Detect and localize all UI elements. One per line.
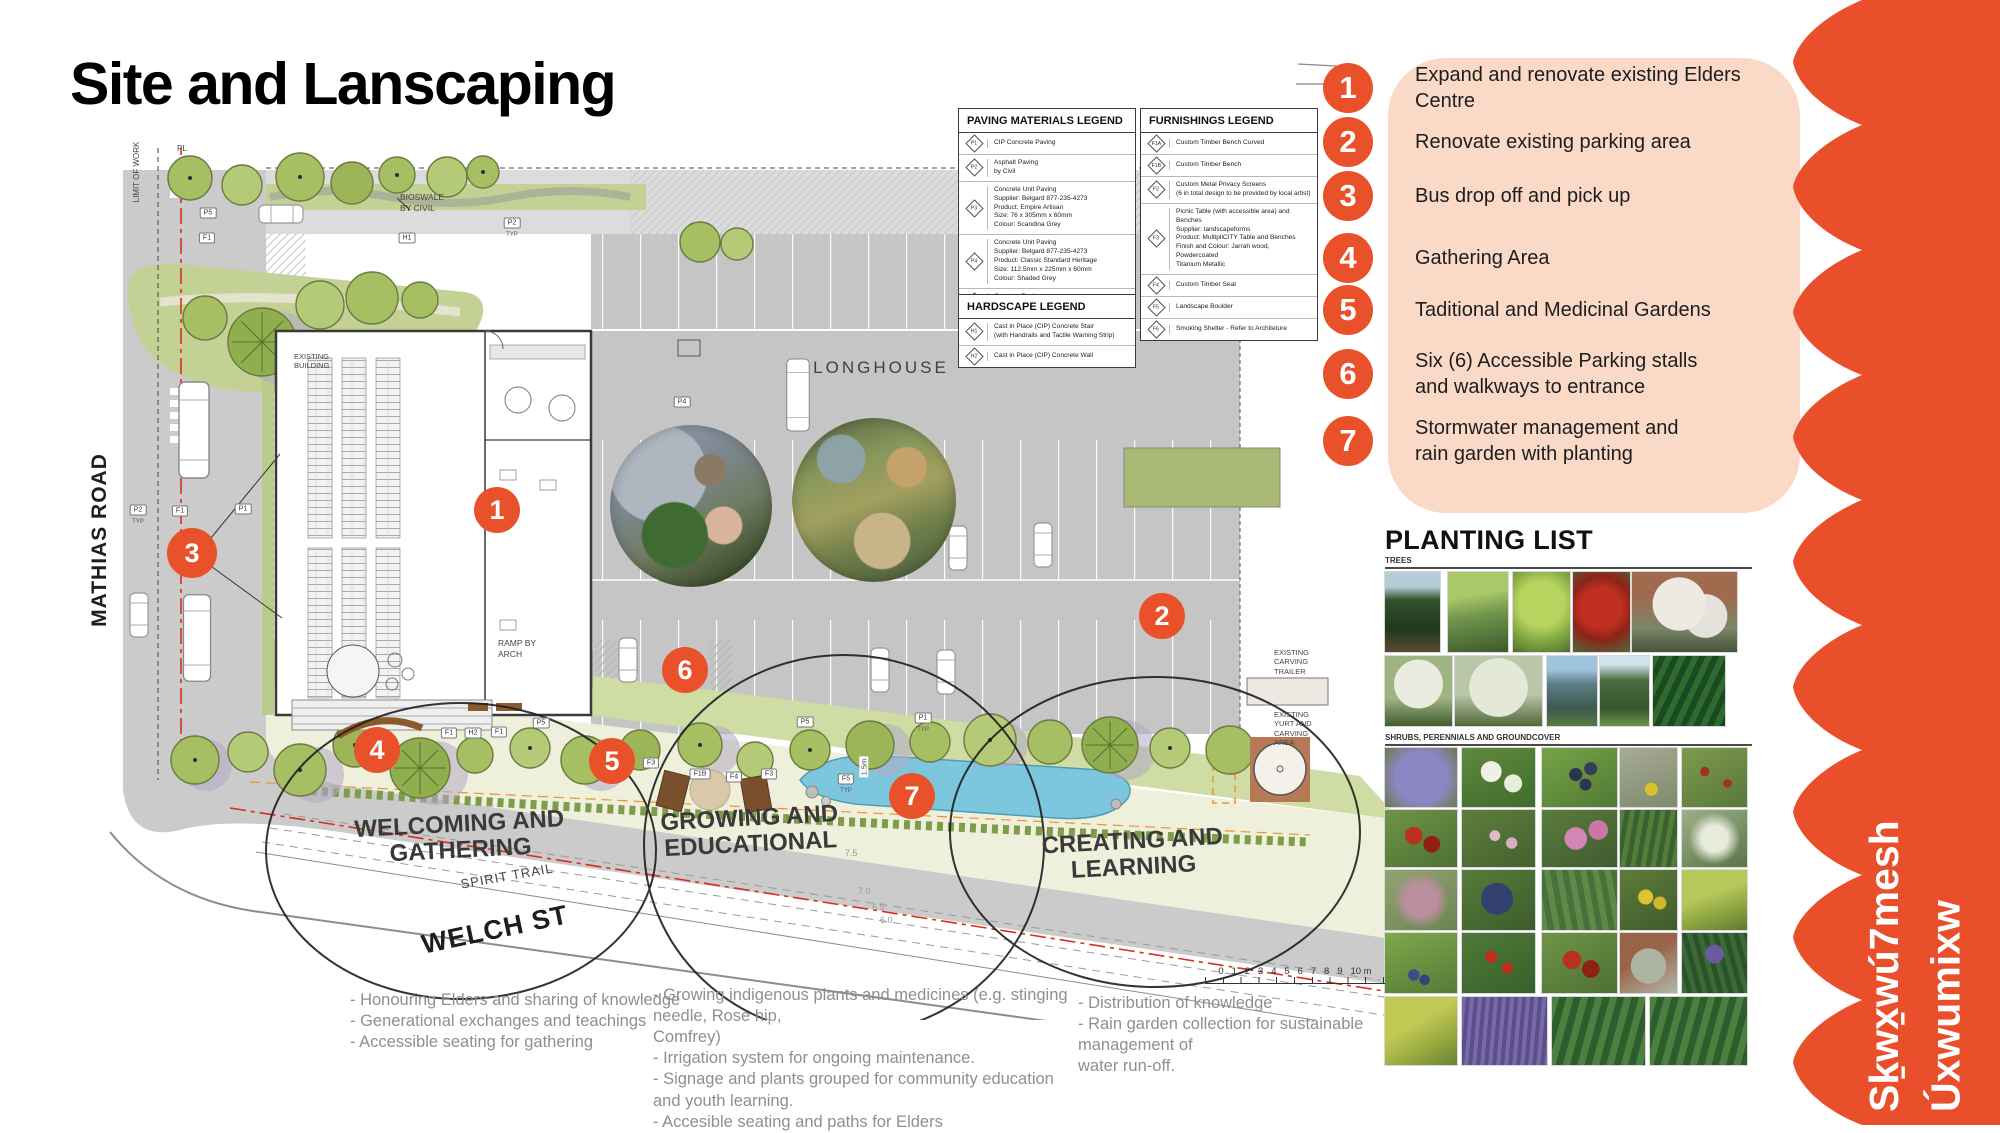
page-title: Site and Lanscaping xyxy=(70,50,615,118)
key-item-4: 4Gathering Area xyxy=(1323,233,1760,283)
contour-label: 7.0 xyxy=(858,886,871,896)
hardscape-legend: HARDSCAPE LEGEND H1Cast in Place (CIP) C… xyxy=(958,294,1136,368)
plant-photo xyxy=(1682,748,1747,807)
furnishing-code-icon: F2 xyxy=(1147,183,1165,196)
legend-title: FURNISHINGS LEGEND xyxy=(1141,109,1317,133)
key-text: Expand and renovate existing Elders Cent… xyxy=(1415,62,1760,115)
furnishing-code-icon: F1A xyxy=(1147,137,1165,150)
paving-code-icon: P4 xyxy=(965,255,983,268)
legend-desc: Custom Timber Bench Curved xyxy=(1169,139,1311,148)
planting-section-shrubs: SHRUBS, PERENNIALS AND GROUNDCOVER xyxy=(1385,733,1560,742)
plant-photo xyxy=(1547,656,1597,726)
plant-photo xyxy=(1462,810,1535,867)
key-text: Stormwater management and rain garden wi… xyxy=(1415,415,1715,468)
plant-photo xyxy=(1682,870,1747,930)
plant-photo xyxy=(1620,810,1677,867)
paving-code-icon: P2 xyxy=(965,161,983,174)
plant-photo xyxy=(1542,810,1617,867)
key-item-5: 5Taditional and Medicinal Gardens xyxy=(1323,285,1760,335)
legend-desc: Asphalt Paving by Civil xyxy=(987,159,1129,177)
plan-marker: P1 xyxy=(915,713,932,724)
plant-photo xyxy=(1385,656,1452,726)
furnishing-code-icon: F1B xyxy=(1147,159,1165,172)
key-item-7: 7Stormwater management and rain garden w… xyxy=(1323,415,1715,468)
plan-marker: F3 xyxy=(761,769,777,780)
brand-line-2: Úxwumixw xyxy=(1916,730,1978,1112)
contour-label: 6.0 xyxy=(880,915,893,925)
longhouse-label: LONGHOUSE xyxy=(813,358,949,378)
plant-photo xyxy=(1653,656,1725,726)
green-roof xyxy=(1124,448,1280,507)
key-number: 1 xyxy=(1323,63,1373,113)
scale-bar: 0 1 2 3 4 5 6 7 8 9 10 m xyxy=(1205,966,1385,984)
key-number: 6 xyxy=(1323,349,1373,399)
plant-photo xyxy=(1513,572,1570,652)
key-item-1: 1Expand and renovate existing Elders Cen… xyxy=(1323,62,1760,115)
scale-bar-ticks xyxy=(1205,977,1385,984)
plan-marker: F1 xyxy=(491,727,507,738)
key-number: 7 xyxy=(1323,416,1373,466)
key-number: 5 xyxy=(1323,285,1373,335)
key-number: 2 xyxy=(1323,117,1373,167)
plant-photo xyxy=(1385,997,1457,1065)
plant-photo xyxy=(1385,870,1457,930)
paving-code-icon: P1 xyxy=(965,137,983,150)
brand-line-1: Sḵwx̱wú7mesh xyxy=(1854,730,1916,1112)
plant-photo xyxy=(1620,933,1677,993)
plan-marker: P5 xyxy=(200,208,217,219)
annotation-existing-building: EXISTING BUILDING xyxy=(294,352,329,371)
legend-desc: Custom Metal Privacy Screens (6 in total… xyxy=(1169,181,1311,199)
paving-materials-legend: PAVING MATERIALS LEGEND P1CIP Concrete P… xyxy=(958,108,1136,315)
plant-photo xyxy=(1462,997,1547,1065)
furnishing-code-icon: F3 xyxy=(1147,232,1165,245)
plan-marker: F1 xyxy=(172,506,188,517)
furnishings-legend: FURNISHINGS LEGEND F1ACustom Timber Benc… xyxy=(1140,108,1318,341)
key-number: 4 xyxy=(1323,233,1373,283)
key-text: Taditional and Medicinal Gardens xyxy=(1415,297,1760,323)
hardscape-code-icon: H2 xyxy=(965,350,983,363)
street-label-mathias-road: MATHIAS ROAD xyxy=(88,453,112,627)
plant-photo xyxy=(1573,572,1630,652)
plant-photo xyxy=(1385,810,1457,867)
plan-callout-5: 5 xyxy=(589,738,635,784)
marker-typ-label: TYP xyxy=(840,788,852,794)
plan-marker: P4 xyxy=(674,397,691,408)
legend-desc: Concrete Unit Paving Supplier: Belgard 8… xyxy=(987,239,1129,283)
legend-desc: Smoking Shelter - Refer to Architeture xyxy=(1169,325,1311,334)
key-text: Bus drop off and pick up xyxy=(1415,183,1760,209)
key-item-3: 3Bus drop off and pick up xyxy=(1323,171,1760,221)
legend-desc: Cast in Place (CIP) Concrete Wall xyxy=(987,352,1129,361)
key-text: Six (6) Accessible Parking stalls and wa… xyxy=(1415,348,1715,401)
plan-marker: P5 xyxy=(797,717,814,728)
plant-photo xyxy=(1600,656,1649,726)
plan-marker: P1 xyxy=(235,504,252,515)
furnishing-code-icon: F5 xyxy=(1147,301,1165,314)
plan-marker: P5 xyxy=(533,718,550,729)
planting-section-trees: TREES xyxy=(1385,556,1412,565)
zone-label-welcoming: WELCOMING AND GATHERING xyxy=(354,806,566,870)
legend-desc: Custom Timber Seat xyxy=(1169,281,1311,290)
legend-desc: Picnic Table (with accessible area) and … xyxy=(1169,208,1311,270)
elders-centre-building xyxy=(276,331,591,730)
footer-note-welcoming: - Honouring Elders and sharing of knowle… xyxy=(350,990,690,1053)
annotation-ramp: RAMP BY ARCH xyxy=(498,638,536,659)
plan-marker: F1B xyxy=(690,769,711,780)
key-number: 3 xyxy=(1323,171,1373,221)
annotation-bioswale: BIOSWALE BY CIVIL xyxy=(400,192,444,213)
footer-note-creating: - Distribution of knowledge - Rain garde… xyxy=(1078,993,1378,1077)
plant-photo xyxy=(1385,933,1457,993)
section-rule xyxy=(1385,744,1752,746)
furnishing-code-icon: F4 xyxy=(1147,279,1165,292)
photo-plant-harvest xyxy=(610,425,772,587)
plant-photo xyxy=(1455,656,1542,726)
plan-callout-4: 4 xyxy=(354,727,400,773)
contour-label: 7.5 xyxy=(845,848,858,858)
marker-typ-label: TYP xyxy=(506,232,518,238)
legend-desc: CIP Concrete Paving xyxy=(987,139,1129,148)
plan-marker: F1 xyxy=(441,728,457,739)
plant-photo xyxy=(1682,810,1747,867)
photo-grass-garden xyxy=(792,418,956,582)
legend-title: HARDSCAPE LEGEND xyxy=(959,295,1135,319)
plan-marker: F1 xyxy=(199,233,215,244)
footer-note-growing: - Growing indigenous plants and medicine… xyxy=(653,985,1073,1133)
plant-photo xyxy=(1632,572,1737,652)
plant-photo xyxy=(1552,997,1645,1065)
paving-code-icon: P3 xyxy=(965,202,983,215)
plant-photo xyxy=(1462,933,1535,993)
plan-marker: H2 xyxy=(465,728,482,739)
plant-photo xyxy=(1462,748,1535,807)
section-rule xyxy=(1385,567,1752,569)
legend-desc: Landscape Boulder xyxy=(1169,303,1311,312)
annotation-carving-trailer: EXISTING CARVING TRAILER xyxy=(1274,648,1309,676)
plan-marker: H1 xyxy=(399,233,416,244)
plant-photo xyxy=(1620,748,1677,807)
annotation-depth: 1.5m xyxy=(859,757,868,778)
plant-photo xyxy=(1385,748,1457,807)
key-item-2: 2Renovate existing parking area xyxy=(1323,117,1760,167)
zone-label-growing: GROWING AND EDUCATIONAL xyxy=(660,801,840,863)
plan-marker: F3 xyxy=(643,758,659,769)
plant-photo xyxy=(1385,572,1440,652)
plan-callout-6: 6 xyxy=(662,647,708,693)
plan-marker: P2 xyxy=(504,218,521,229)
legend-desc: Concrete Unit Paving Supplier: Belgard 8… xyxy=(987,186,1129,230)
legend-title: PAVING MATERIALS LEGEND xyxy=(959,109,1135,133)
planting-list-title: PLANTING LIST xyxy=(1385,525,1593,556)
plant-photo xyxy=(1650,997,1747,1065)
contour-label: 6.5 xyxy=(872,902,885,912)
key-text: Gathering Area xyxy=(1415,245,1760,271)
plan-marker: F4 xyxy=(726,772,742,783)
plan-marker: F5 xyxy=(838,774,854,785)
plant-photo xyxy=(1682,933,1747,993)
plan-callout-1: 1 xyxy=(474,487,520,533)
plan-callout-3: 3 xyxy=(167,528,217,578)
furnishing-code-icon: F6 xyxy=(1147,323,1165,336)
key-item-6: 6Six (6) Accessible Parking stalls and w… xyxy=(1323,348,1715,401)
zone-label-creating: CREATING AND LEARNING xyxy=(1041,824,1225,886)
scale-bar-text: 0 1 2 3 4 5 6 7 8 9 10 m xyxy=(1205,966,1385,977)
key-text: Renovate existing parking area xyxy=(1415,129,1760,155)
marker-typ-label: TYP xyxy=(917,727,929,733)
annotation-limit-of-work: LIMIT OF WORK xyxy=(132,142,142,203)
legend-desc: Cast in Place (CIP) Concrete Stair (with… xyxy=(987,323,1129,341)
annotation-yurt: EXISTING YURT AND CARVING AREA xyxy=(1274,710,1312,748)
marker-typ-label: TYP xyxy=(132,519,144,525)
plan-callout-7: 7 xyxy=(889,773,935,819)
legend-desc: Custom Timber Bench xyxy=(1169,161,1311,170)
plan-marker: P2 xyxy=(130,505,147,516)
plant-photo xyxy=(1542,933,1617,993)
plant-photo xyxy=(1620,870,1677,930)
annotation-pl: PL xyxy=(177,144,187,154)
plant-photo xyxy=(1542,748,1617,807)
brand-text-squamish-nation: Sḵwx̱wú7mesh Úxwumixw xyxy=(1854,730,2000,1112)
hardscape-code-icon: H1 xyxy=(965,325,983,338)
plan-callout-2: 2 xyxy=(1139,593,1185,639)
plant-photo xyxy=(1542,870,1617,930)
plant-photo xyxy=(1462,870,1535,930)
plant-photo xyxy=(1448,572,1508,652)
